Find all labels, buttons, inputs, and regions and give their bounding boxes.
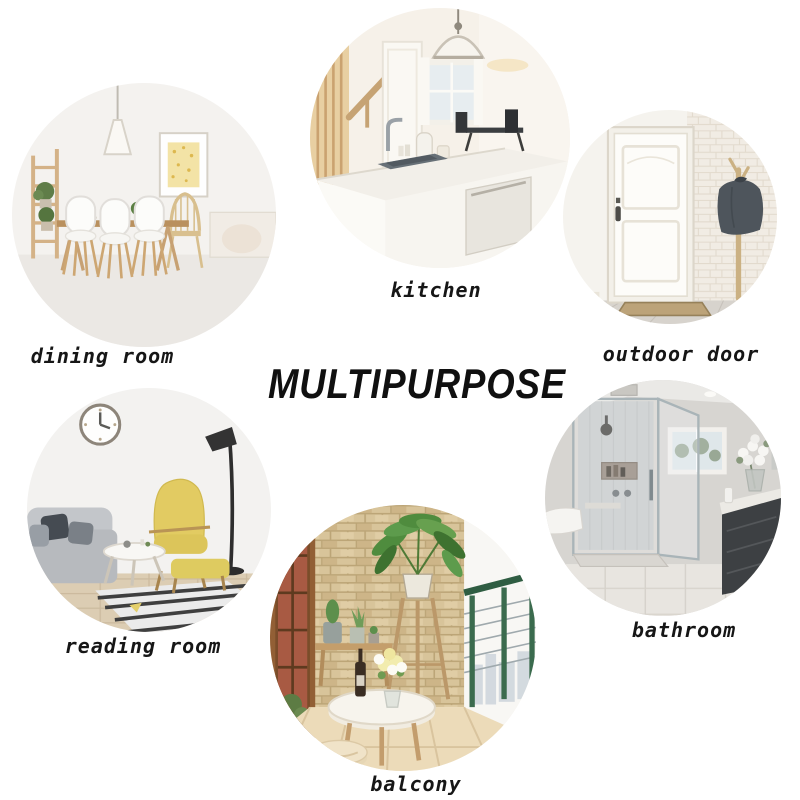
main-title: MULTIPURPOSE	[263, 360, 571, 408]
stool	[311, 740, 367, 769]
balcony-illustration	[270, 505, 536, 771]
ceiling-glow	[487, 59, 529, 72]
vanity	[720, 487, 781, 594]
reading-room-label: reading room	[40, 634, 246, 658]
kitchen-label: kitchen	[341, 278, 531, 302]
background-window	[421, 57, 483, 125]
dining-room-label: dining room	[0, 344, 205, 368]
bathroom-label: bathroom	[590, 618, 778, 642]
jacket	[718, 177, 764, 235]
wall-clock	[81, 405, 120, 444]
outdoor-door-label: outdoor door	[575, 342, 787, 366]
balcony-label: balcony	[330, 772, 502, 796]
vent	[611, 385, 637, 396]
shower-curb	[573, 555, 667, 567]
bathroom-illustration	[545, 380, 781, 616]
doormat	[617, 303, 711, 316]
balcony-photo	[270, 505, 536, 771]
mirror-edge	[772, 408, 781, 469]
product-collage: MULTIPURPOSE dining room kitchen outdoor…	[0, 0, 800, 800]
armchair-beige	[222, 224, 262, 253]
balcony-window	[270, 505, 315, 739]
bathtub	[545, 508, 583, 534]
outdoor-door-illustration	[563, 110, 777, 324]
dining-room-illustration	[12, 83, 276, 347]
gray-sofa	[27, 508, 117, 584]
door	[608, 127, 694, 302]
reading-room-illustration	[27, 388, 271, 632]
small-object	[589, 292, 600, 298]
reading-room-photo	[27, 388, 271, 632]
wall-art	[160, 133, 208, 196]
kitchen-illustration	[310, 8, 570, 268]
door-handle	[615, 206, 620, 221]
bathroom-photo	[545, 380, 781, 616]
dining-room-photo	[12, 83, 276, 347]
kitchen-photo	[310, 8, 570, 268]
glass-enclosure	[573, 399, 698, 559]
outdoor-door-photo	[563, 110, 777, 324]
soap-bottle	[724, 487, 732, 502]
